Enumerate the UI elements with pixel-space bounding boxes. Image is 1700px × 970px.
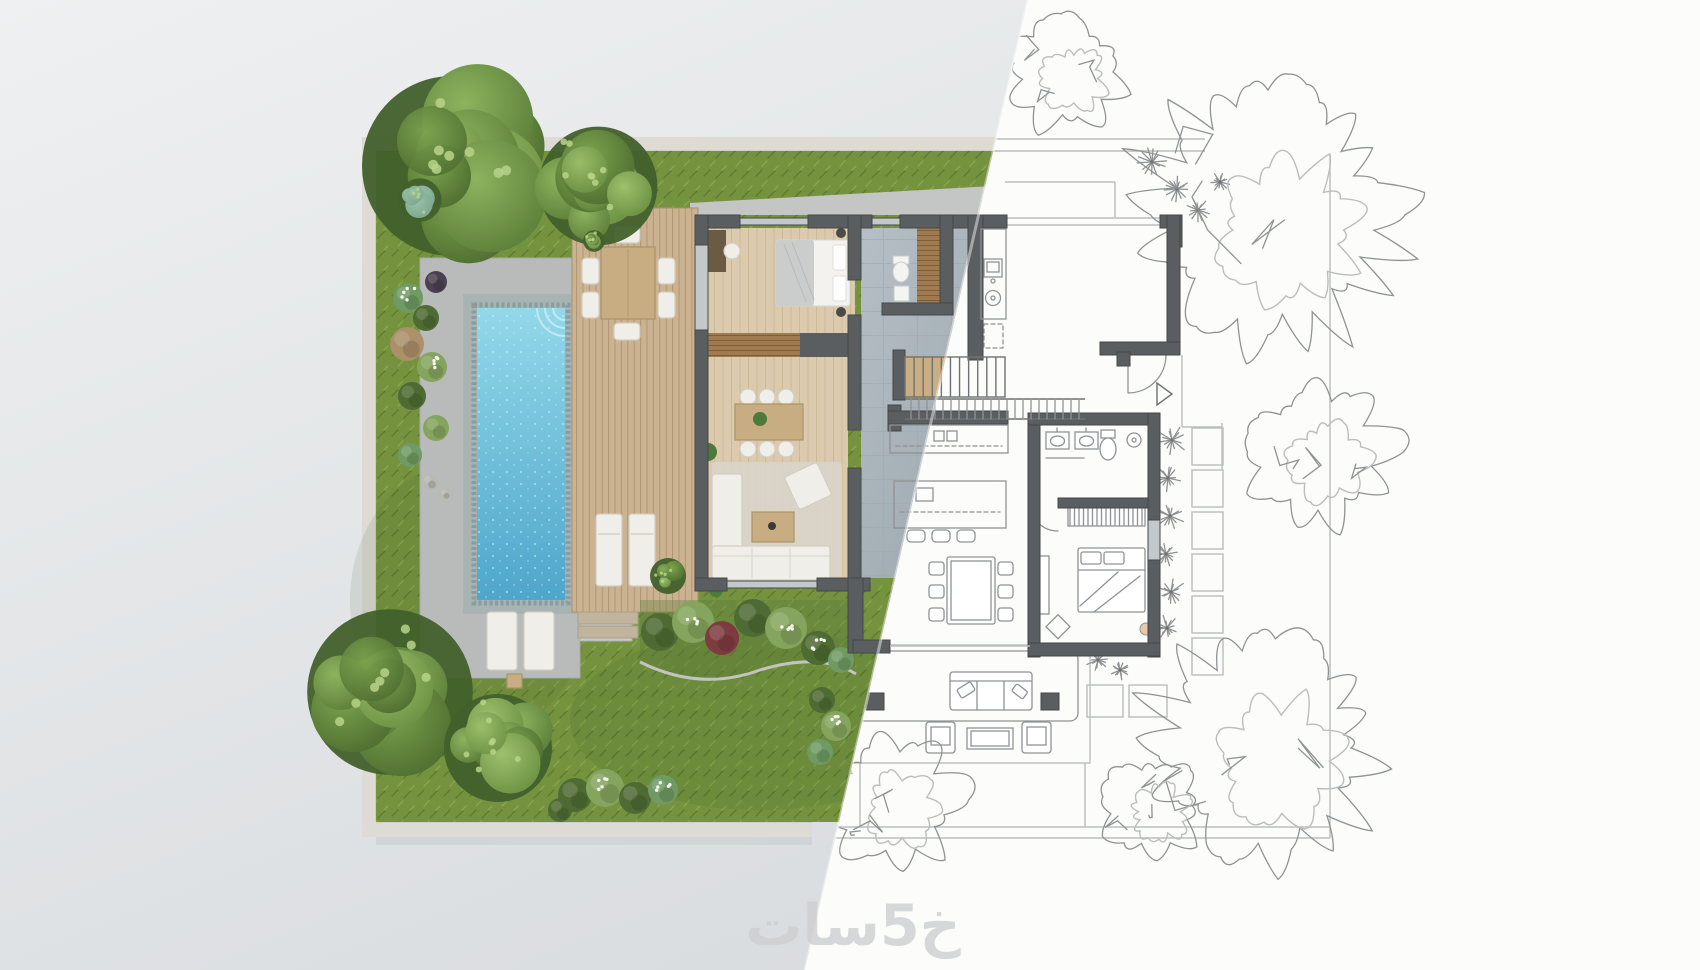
bar-stool [932, 530, 950, 542]
bedside-lamp [836, 228, 846, 238]
render-tree [444, 694, 553, 802]
deck-step [578, 626, 638, 638]
outdoor-chair [658, 292, 675, 318]
outdoor-chair [614, 323, 640, 340]
outdoor-armchair-sketch [926, 722, 955, 753]
sun-lounger [524, 612, 554, 670]
dining-set-sketch [929, 557, 1013, 624]
media-console [708, 333, 800, 357]
partition-wall [800, 333, 848, 357]
render-tree [398, 178, 441, 221]
architectural-site-plan [0, 0, 1700, 970]
shrub [809, 687, 835, 713]
sun-lounger [487, 612, 517, 670]
sink [894, 286, 909, 301]
shrub [390, 327, 424, 361]
sofa [712, 546, 830, 580]
table-plant [753, 412, 767, 426]
coffee-table-sketch [967, 728, 1013, 749]
dining-chair [759, 389, 775, 405]
toilet [893, 262, 909, 282]
outdoor-armchair-sketch [1022, 722, 1051, 753]
toilet-sketch [1100, 430, 1116, 460]
outdoor-sofa-sketch [950, 672, 1032, 710]
bed [776, 240, 850, 306]
shrub [398, 382, 426, 410]
render-tree [583, 230, 605, 252]
shrub [417, 352, 447, 382]
bedside-lamp [836, 307, 846, 317]
shrub [439, 488, 451, 500]
bed-sketch [1078, 548, 1145, 612]
pillow [833, 245, 846, 270]
terrace-planter-post [1041, 693, 1059, 710]
dining-chair [740, 441, 756, 457]
outdoor-chair [582, 292, 599, 318]
outdoor-chair [658, 258, 675, 284]
dining-table [735, 404, 803, 440]
shrub [619, 782, 651, 814]
shrub [425, 271, 447, 293]
shrub [423, 415, 449, 441]
watermark-logo: خ5سات [745, 898, 961, 955]
dining-chair [759, 441, 775, 457]
shrub [648, 775, 678, 805]
pillow [833, 276, 846, 301]
shrub [548, 798, 572, 822]
dining-chair [778, 441, 794, 457]
shrub [705, 621, 739, 655]
deck-step [578, 612, 638, 624]
shrub [765, 607, 807, 649]
swimming-pool [463, 294, 579, 614]
dining-set-render [735, 389, 803, 457]
round-basin [1127, 433, 1141, 447]
shrub [398, 443, 422, 467]
dining-chair [778, 389, 794, 405]
dining-chair [740, 389, 756, 405]
shrub [422, 474, 438, 490]
side-table [507, 674, 522, 688]
sun-lounger [596, 514, 622, 586]
bar-stool [957, 530, 975, 542]
chair [724, 243, 740, 259]
living-room-render [699, 443, 842, 597]
shrub [586, 769, 624, 807]
outdoor-chair [582, 258, 599, 284]
floorplan-render-vs-sketch-image: خ5سات [0, 0, 1700, 970]
render-tree [650, 558, 686, 594]
bar-stool [907, 530, 925, 542]
slatted-bench [917, 228, 941, 306]
shrub [413, 305, 439, 331]
site-shadow [376, 837, 812, 845]
shrub [807, 739, 833, 765]
dresser [708, 230, 726, 272]
